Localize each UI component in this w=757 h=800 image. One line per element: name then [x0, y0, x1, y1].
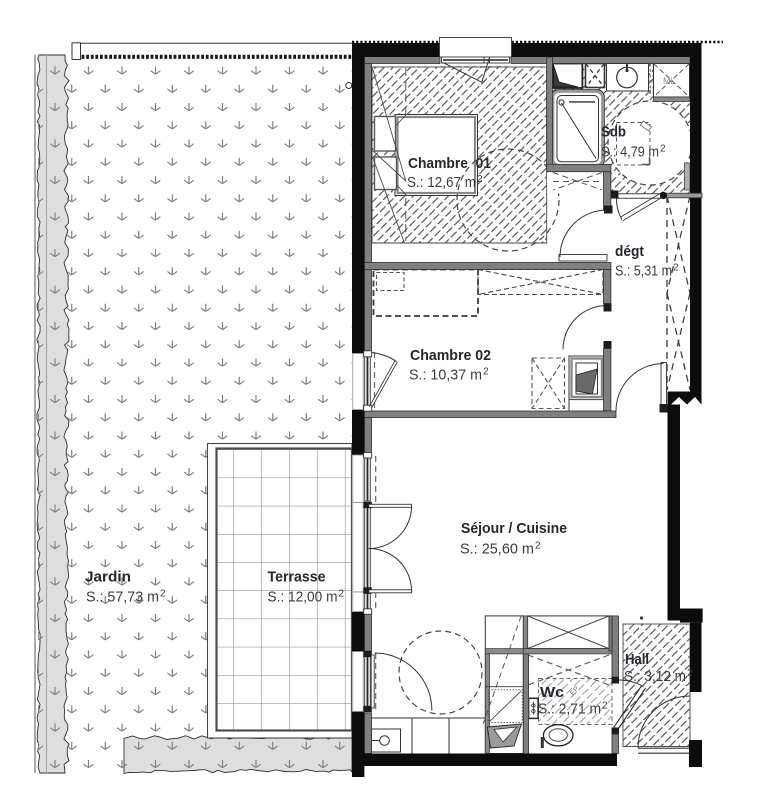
- svg-text:2: 2: [535, 541, 541, 552]
- svg-text:Séjour / Cuisine: Séjour / Cuisine: [461, 520, 567, 537]
- svg-text:ML: ML: [663, 76, 676, 86]
- svg-text:S.: 25,60 m: S.: 25,60 m: [460, 541, 534, 558]
- svg-text:2: 2: [477, 174, 483, 185]
- svg-text:S.: 12,67 m: S.: 12,67 m: [407, 174, 476, 191]
- svg-text:S.: 2,71 m: S.: 2,71 m: [538, 701, 601, 718]
- svg-text:2: 2: [483, 367, 489, 378]
- svg-text:Wc: Wc: [540, 684, 564, 701]
- svg-text:2: 2: [673, 263, 679, 274]
- svg-text:2: 2: [660, 144, 666, 155]
- svg-text:2: 2: [160, 589, 166, 600]
- svg-text:S.: 10,37 m: S.: 10,37 m: [409, 367, 482, 384]
- svg-text:dégt: dégt: [615, 243, 644, 260]
- svg-text:S.: 12,00 m: S.: 12,00 m: [268, 589, 338, 606]
- svg-text:S.: 5,31 m: S.: 5,31 m: [615, 263, 672, 280]
- svg-text:Hall: Hall: [625, 651, 649, 668]
- svg-text:Chambre 01: Chambre 01: [408, 155, 491, 172]
- svg-text:S.: 57,73 m: S.: 57,73 m: [86, 589, 159, 606]
- svg-text:S.: 3,12 m: S.: 3,12 m: [624, 668, 686, 685]
- svg-text:Chambre 02: Chambre 02: [410, 347, 491, 364]
- svg-text:S.: 4,79 m: S.: 4,79 m: [601, 144, 659, 161]
- svg-text:2: 2: [602, 701, 608, 712]
- svg-text:Jardin: Jardin: [85, 569, 131, 586]
- svg-text:Terrasse: Terrasse: [268, 569, 326, 586]
- svg-text:2: 2: [339, 589, 345, 600]
- svg-text:2: 2: [687, 668, 693, 679]
- svg-text:Sdb: Sdb: [601, 124, 626, 141]
